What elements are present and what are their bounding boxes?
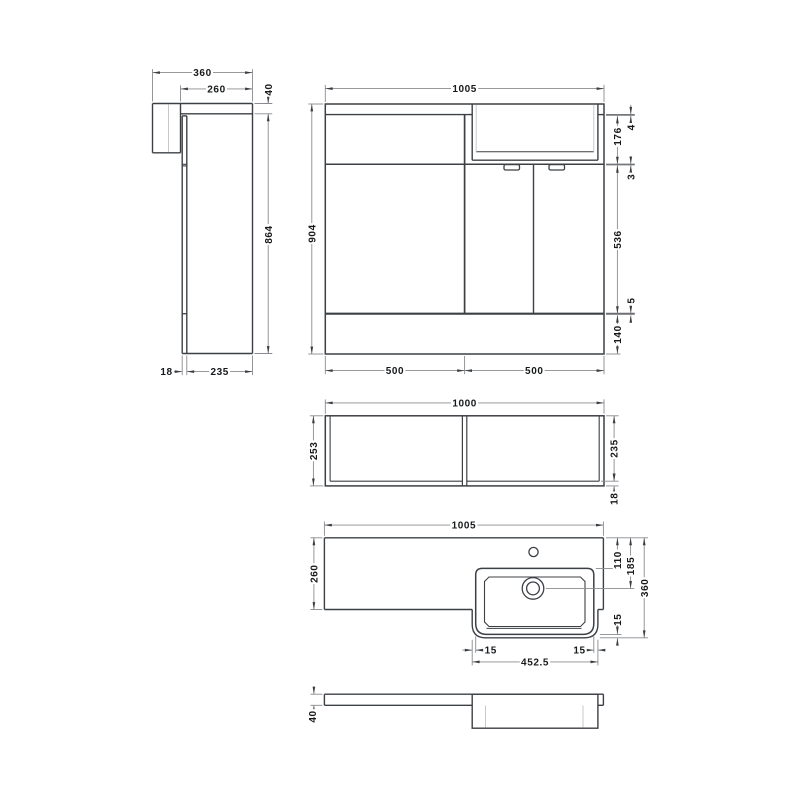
svg-text:904: 904 <box>307 224 318 243</box>
svg-text:536: 536 <box>613 230 624 249</box>
svg-text:360: 360 <box>193 68 212 79</box>
svg-text:15: 15 <box>485 645 497 656</box>
svg-text:18: 18 <box>610 493 621 505</box>
svg-text:452.5: 452.5 <box>521 658 549 669</box>
svg-text:864: 864 <box>264 225 275 244</box>
svg-text:1005: 1005 <box>452 521 477 532</box>
svg-text:260: 260 <box>207 85 226 96</box>
svg-text:15: 15 <box>613 614 624 626</box>
svg-text:176: 176 <box>613 127 624 146</box>
svg-text:360: 360 <box>640 579 651 598</box>
svg-text:500: 500 <box>386 366 405 377</box>
svg-text:5: 5 <box>626 297 637 303</box>
svg-text:235: 235 <box>210 367 229 378</box>
svg-text:15: 15 <box>573 645 585 656</box>
svg-text:500: 500 <box>525 366 544 377</box>
svg-text:110: 110 <box>613 551 624 569</box>
svg-text:260: 260 <box>309 564 320 583</box>
svg-text:235: 235 <box>610 439 621 458</box>
svg-text:140: 140 <box>613 325 624 344</box>
svg-text:4: 4 <box>626 124 637 130</box>
svg-text:1000: 1000 <box>452 399 477 410</box>
svg-text:40: 40 <box>264 83 275 95</box>
svg-text:40: 40 <box>308 710 319 722</box>
svg-text:253: 253 <box>309 442 320 461</box>
svg-text:3: 3 <box>626 174 637 180</box>
svg-text:18: 18 <box>160 367 172 378</box>
svg-text:185: 185 <box>626 557 637 576</box>
svg-text:1005: 1005 <box>452 84 477 95</box>
